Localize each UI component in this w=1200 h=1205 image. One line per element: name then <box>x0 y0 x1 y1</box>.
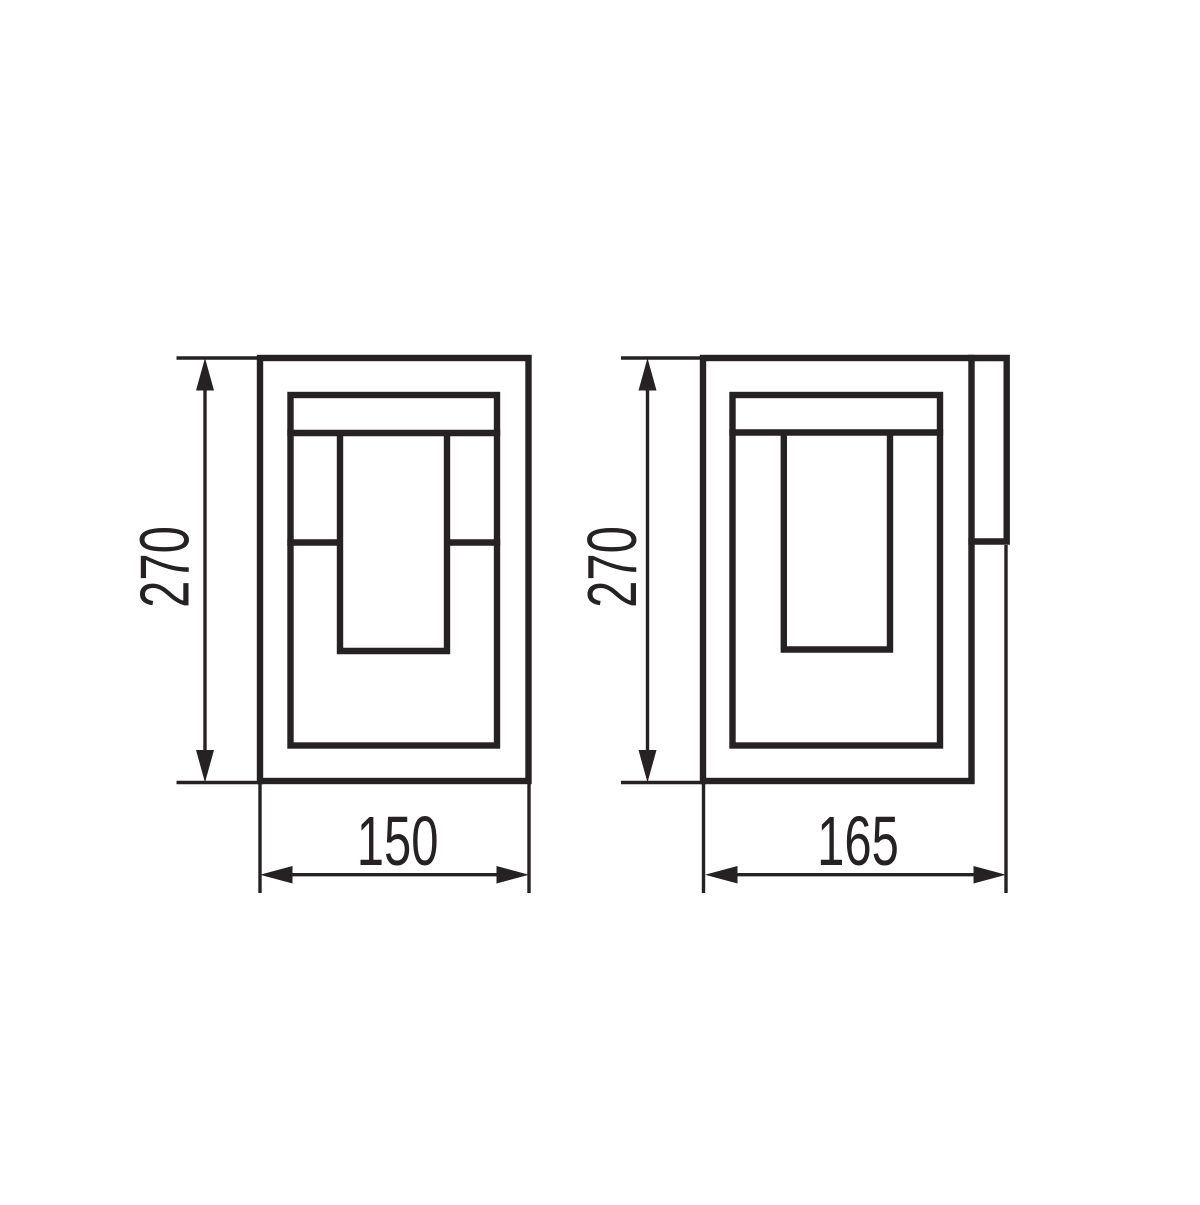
svg-text:165: 165 <box>817 801 899 880</box>
svg-text:270: 270 <box>572 526 651 608</box>
svg-text:270: 270 <box>125 526 204 608</box>
svg-text:150: 150 <box>357 801 439 880</box>
